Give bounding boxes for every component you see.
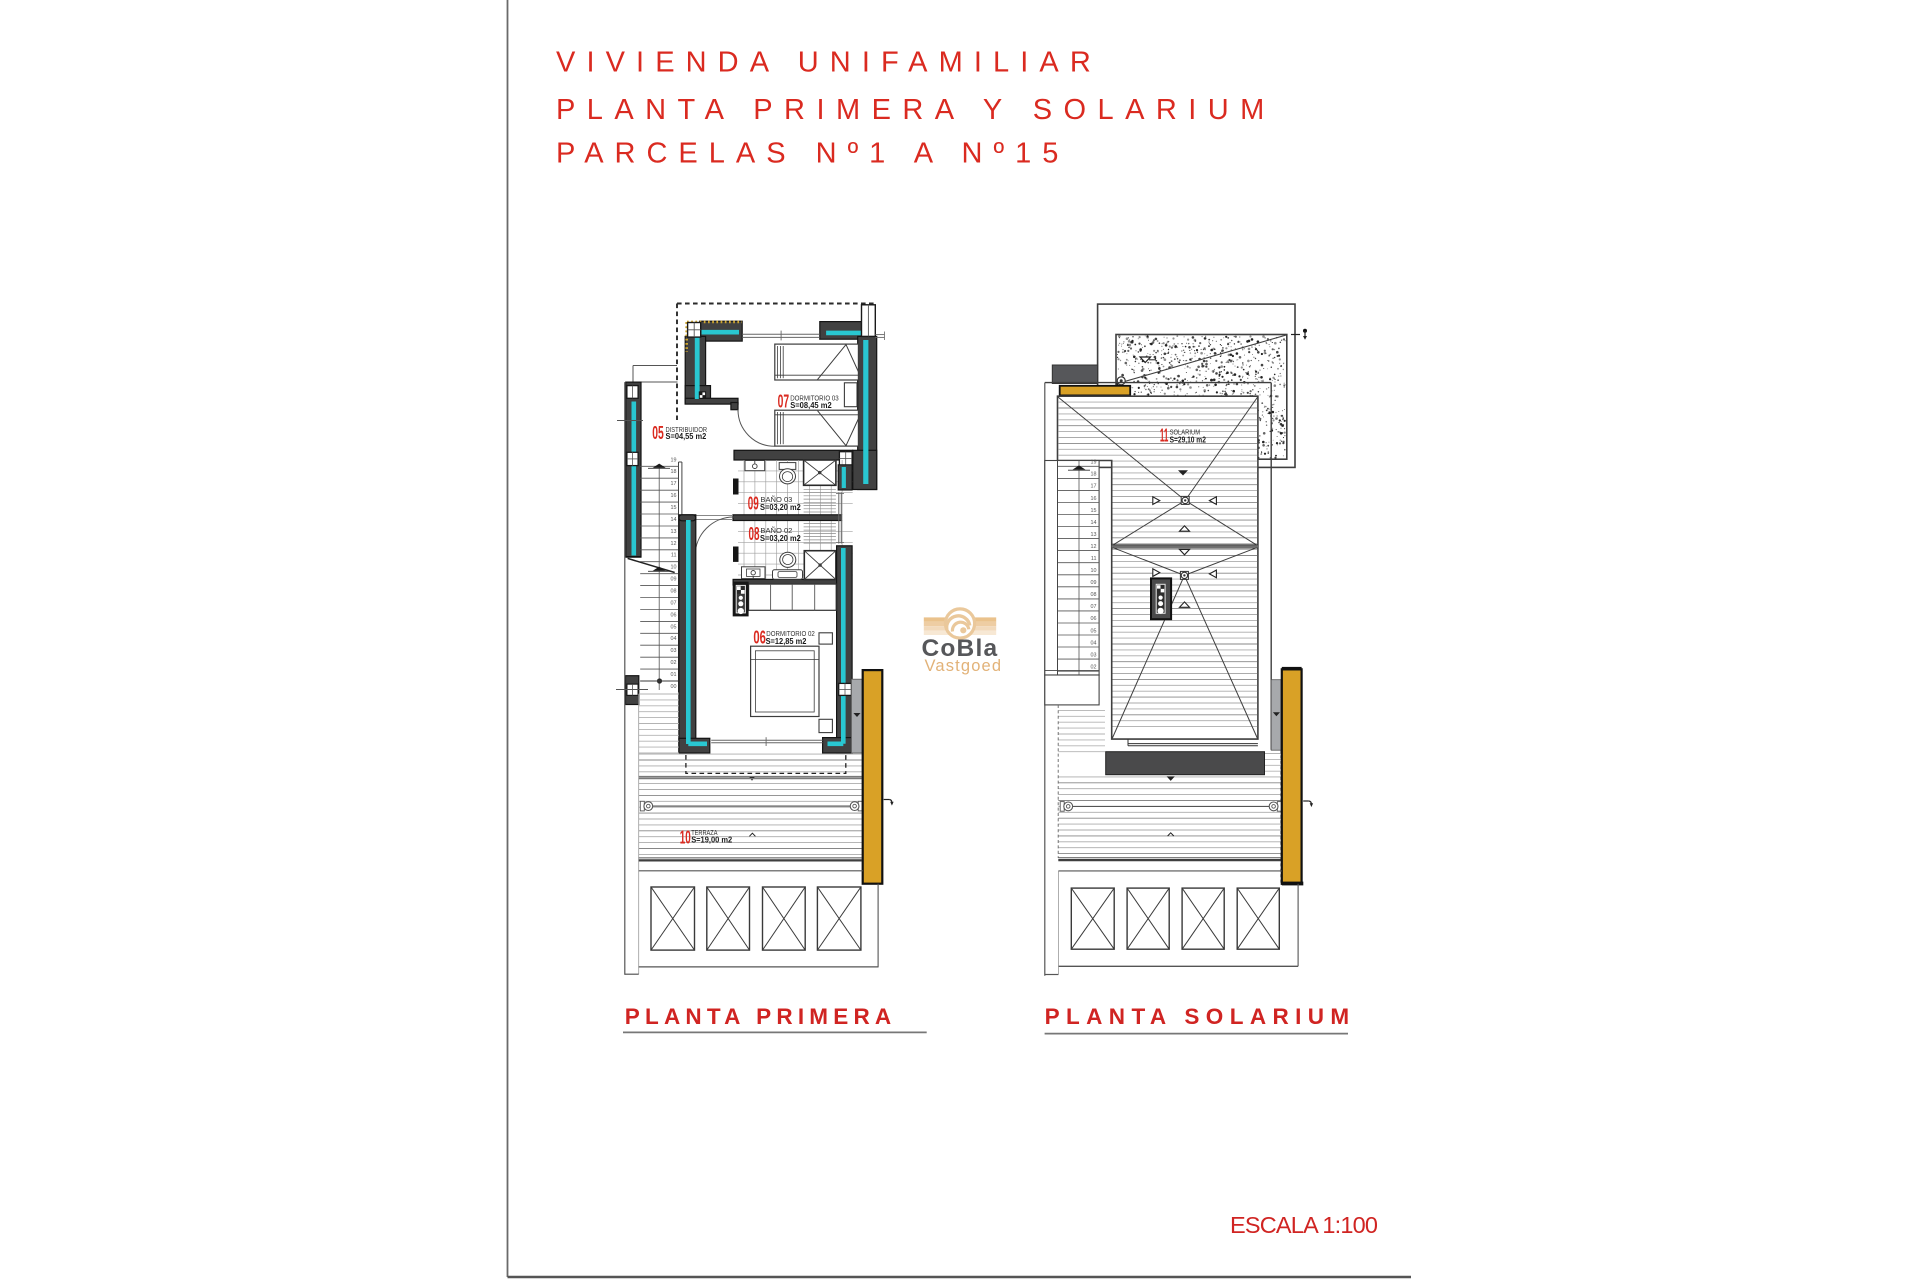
svg-text:S=29,10 m2: S=29,10 m2: [1170, 435, 1206, 445]
svg-text:S=03,20 m2: S=03,20 m2: [760, 533, 801, 543]
svg-text:18: 18: [671, 469, 677, 475]
svg-text:13: 13: [1091, 532, 1097, 538]
svg-text:09: 09: [748, 492, 759, 513]
svg-text:11: 11: [1160, 424, 1169, 445]
svg-text:12: 12: [1091, 544, 1097, 550]
svg-text:09: 09: [671, 577, 677, 583]
svg-text:02: 02: [1091, 665, 1097, 671]
svg-text:S=19,00 m2: S=19,00 m2: [691, 834, 732, 844]
svg-text:05: 05: [652, 422, 664, 443]
svg-text:08: 08: [749, 523, 760, 544]
svg-text:08: 08: [671, 589, 677, 595]
svg-text:05: 05: [671, 624, 677, 630]
svg-text:VIVIENDA UNIFAMILIAR: VIVIENDA UNIFAMILIAR: [556, 47, 1102, 79]
svg-text:04: 04: [671, 636, 677, 642]
svg-text:S=08,45 m2: S=08,45 m2: [790, 400, 832, 410]
svg-text:19: 19: [1091, 460, 1097, 466]
svg-text:ESCALA 1:100: ESCALA 1:100: [1230, 1212, 1378, 1238]
svg-text:10: 10: [671, 565, 677, 571]
svg-text:08: 08: [1091, 592, 1097, 598]
svg-text:10: 10: [680, 826, 691, 847]
svg-text:19: 19: [671, 457, 677, 463]
svg-text:05: 05: [1091, 628, 1097, 634]
svg-text:17: 17: [671, 481, 677, 487]
svg-text:06: 06: [753, 627, 766, 648]
svg-text:14: 14: [671, 517, 677, 523]
svg-text:16: 16: [1091, 496, 1097, 502]
svg-text:15: 15: [671, 505, 677, 511]
svg-text:03: 03: [1091, 652, 1097, 658]
svg-text:10: 10: [1091, 568, 1097, 574]
svg-text:03: 03: [671, 648, 677, 654]
svg-text:09: 09: [1091, 580, 1097, 586]
svg-text:S=04,55 m2: S=04,55 m2: [666, 431, 707, 441]
svg-text:PLANTA PRIMERA Y SOLARIUM: PLANTA PRIMERA Y SOLARIUM: [556, 94, 1276, 126]
svg-text:S=03,20 m2: S=03,20 m2: [760, 502, 801, 512]
svg-text:11: 11: [1091, 556, 1097, 562]
svg-text:06: 06: [1091, 616, 1097, 622]
svg-text:PLANTA SOLARIUM: PLANTA SOLARIUM: [1045, 1004, 1356, 1029]
svg-text:18: 18: [1091, 472, 1097, 478]
svg-text:00: 00: [671, 684, 677, 690]
svg-text:PARCELAS Nº1 A Nº15: PARCELAS Nº1 A Nº15: [556, 137, 1069, 169]
svg-text:PLANTA PRIMERA: PLANTA PRIMERA: [625, 1004, 897, 1029]
svg-text:07: 07: [671, 601, 677, 607]
svg-text:04: 04: [1091, 640, 1097, 646]
svg-text:12: 12: [671, 541, 677, 547]
svg-text:Vastgoed: Vastgoed: [925, 657, 1003, 675]
svg-text:07: 07: [1091, 604, 1097, 610]
svg-text:11: 11: [671, 553, 677, 559]
svg-text:07: 07: [778, 391, 790, 412]
svg-text:14: 14: [1091, 520, 1097, 526]
svg-text:16: 16: [671, 493, 677, 499]
svg-text:S=12,85 m2: S=12,85 m2: [766, 636, 807, 646]
svg-text:02: 02: [671, 660, 677, 666]
svg-text:15: 15: [1091, 508, 1097, 514]
svg-text:01: 01: [671, 672, 677, 678]
svg-text:06: 06: [671, 612, 677, 618]
svg-text:17: 17: [1091, 484, 1097, 490]
svg-text:13: 13: [671, 529, 677, 535]
